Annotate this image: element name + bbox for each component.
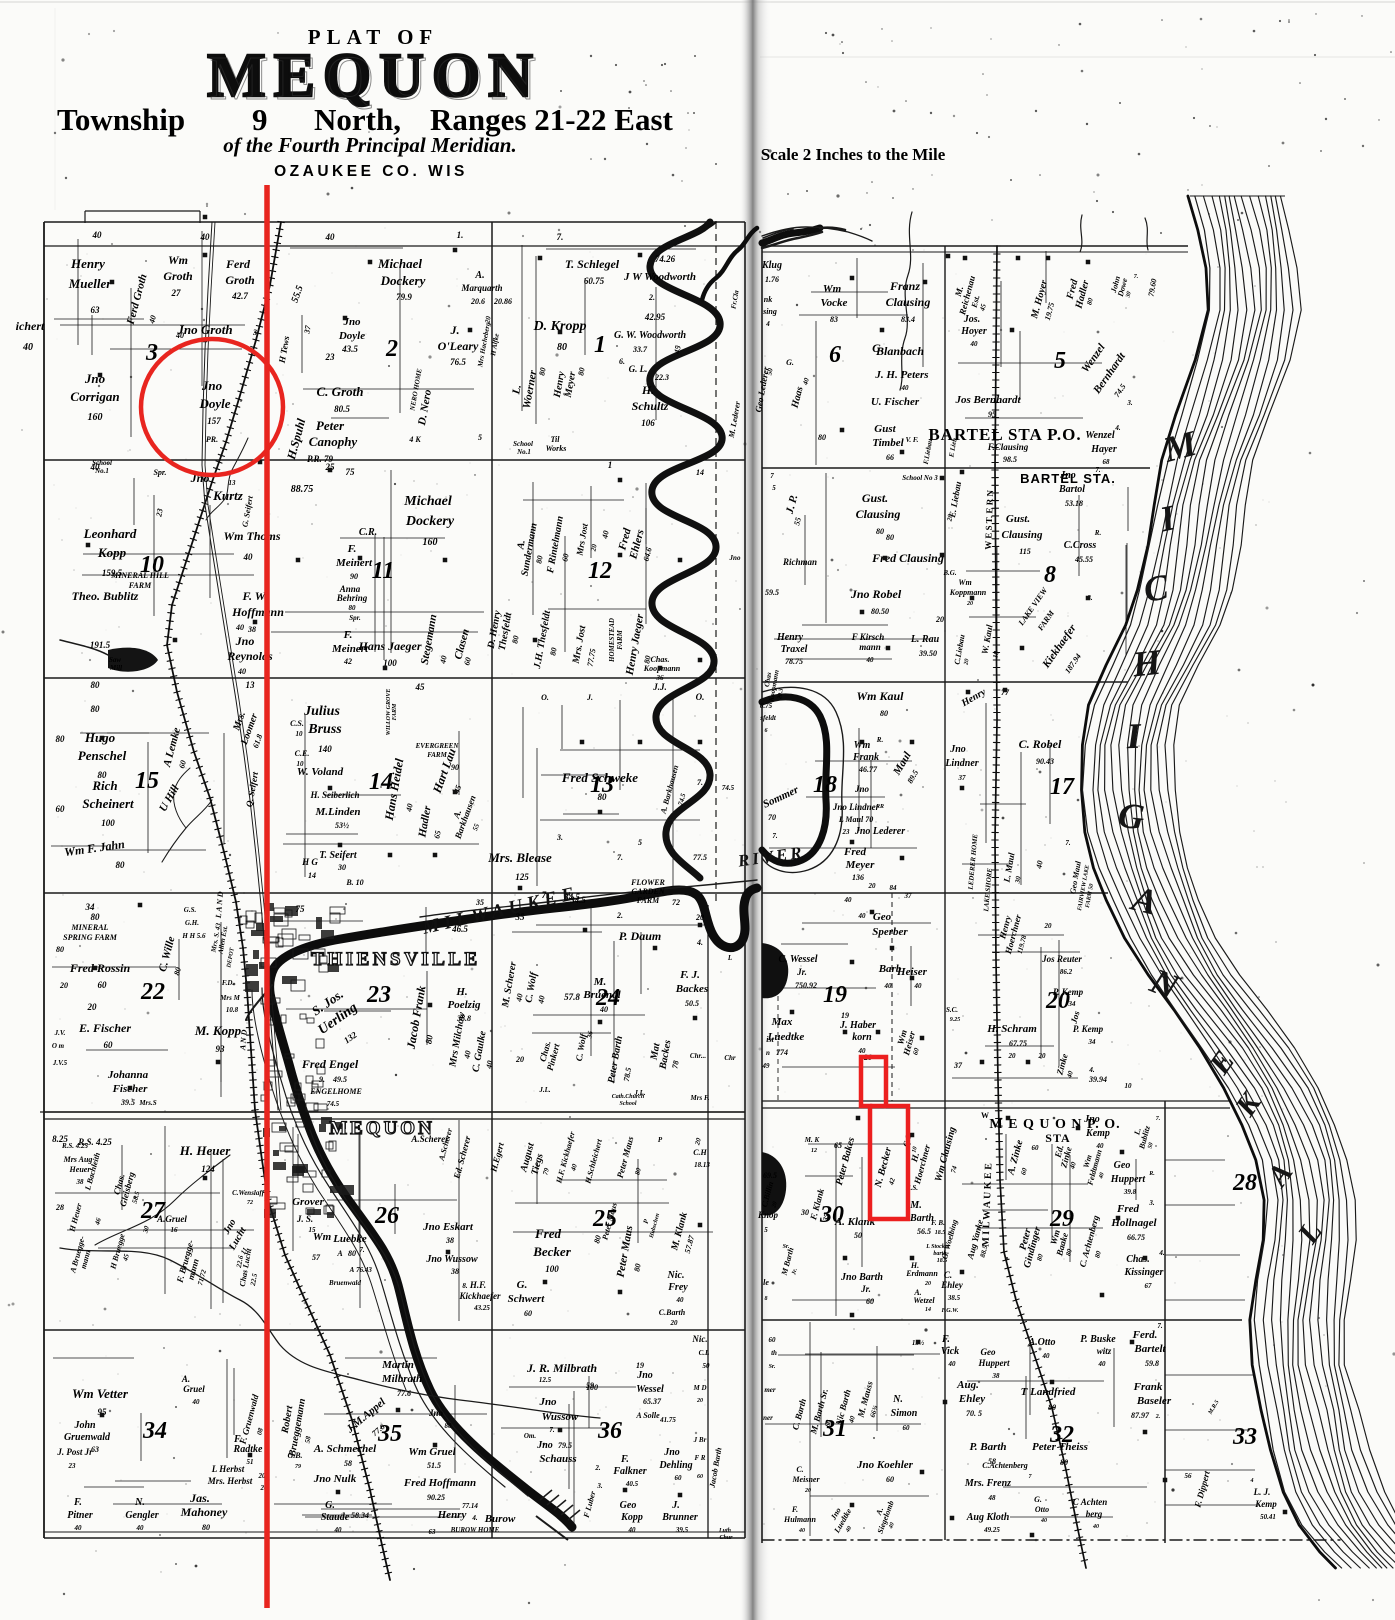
svg-text:J.: J. xyxy=(586,693,593,702)
svg-text:80: 80 xyxy=(348,1249,356,1258)
svg-text:160: 160 xyxy=(88,412,103,423)
svg-text:2.: 2. xyxy=(594,1464,601,1472)
svg-text:Kissinger: Kissinger xyxy=(1124,1267,1164,1278)
svg-text:G: G xyxy=(1116,795,1146,837)
svg-text:F R: F R xyxy=(695,1454,706,1462)
svg-text:80: 80 xyxy=(56,945,64,954)
svg-text:69.5: 69.5 xyxy=(763,1171,777,1180)
svg-text:F Kirsch: F Kirsch xyxy=(851,632,885,642)
svg-text:15: 15 xyxy=(309,1226,317,1234)
svg-text:J. Post Jr: J. Post Jr xyxy=(56,1447,93,1457)
svg-text:5: 5 xyxy=(478,433,482,442)
svg-text:Scheinert: Scheinert xyxy=(82,796,134,811)
svg-text:4.: 4. xyxy=(1114,424,1121,432)
svg-text:20.6: 20.6 xyxy=(470,297,485,306)
svg-text:Hulmann: Hulmann xyxy=(783,1515,817,1524)
svg-text:125: 125 xyxy=(515,872,529,882)
svg-text:40: 40 xyxy=(676,1296,685,1304)
svg-text:Doyle: Doyle xyxy=(338,330,365,342)
svg-text:45: 45 xyxy=(415,682,426,692)
svg-text:18.13: 18.13 xyxy=(694,1161,710,1169)
svg-text:Leonhard: Leonhard xyxy=(83,526,137,541)
svg-text:39.5: 39.5 xyxy=(120,1098,135,1107)
svg-text:60: 60 xyxy=(697,1474,703,1480)
svg-text:Staude: Staude xyxy=(321,1512,350,1523)
svg-text:PR.: PR. xyxy=(206,435,218,444)
svg-text:G.: G. xyxy=(325,1500,335,1511)
svg-text:1: 1 xyxy=(608,460,613,470)
svg-text:MEQUON: MEQUON xyxy=(329,1118,435,1139)
svg-text:750.92: 750.92 xyxy=(795,981,817,990)
svg-text:20: 20 xyxy=(868,882,877,890)
svg-text:3.: 3. xyxy=(556,833,563,842)
svg-text:63: 63 xyxy=(91,305,101,315)
svg-text:Doyle: Doyle xyxy=(198,396,230,411)
svg-text:45: 45 xyxy=(672,345,682,355)
svg-text:100: 100 xyxy=(545,1264,559,1274)
svg-text:40: 40 xyxy=(325,232,336,242)
svg-text:11: 11 xyxy=(372,558,395,584)
svg-text:L Maul 70: L Maul 70 xyxy=(838,815,873,824)
svg-text:53½: 53½ xyxy=(335,821,349,830)
svg-text:49.5: 49.5 xyxy=(332,1075,347,1084)
svg-text:A.Gruel: A.Gruel xyxy=(156,1214,187,1224)
svg-text:mann: mann xyxy=(859,642,881,652)
svg-text:10: 10 xyxy=(297,760,305,768)
svg-text:80: 80 xyxy=(510,635,520,644)
svg-text:Fred Clausing: Fred Clausing xyxy=(871,551,944,565)
svg-text:80: 80 xyxy=(1060,1458,1068,1467)
svg-text:Bruendl: Bruendl xyxy=(582,989,621,1001)
svg-text:F. W.: F. W. xyxy=(241,589,267,603)
svg-text:40: 40 xyxy=(462,1050,472,1060)
svg-text:60: 60 xyxy=(769,1336,777,1344)
svg-text:51: 51 xyxy=(247,1458,254,1466)
svg-text:FARM: FARM xyxy=(392,703,398,720)
svg-text:7.: 7. xyxy=(359,1246,365,1254)
svg-text:20: 20 xyxy=(1045,988,1070,1014)
svg-text:Erdmann: Erdmann xyxy=(905,1269,938,1278)
svg-text:5: 5 xyxy=(772,484,776,492)
svg-text:Klug: Klug xyxy=(761,260,782,271)
svg-text:Huppert: Huppert xyxy=(1110,1174,1147,1185)
svg-text:20: 20 xyxy=(1008,1052,1017,1060)
svg-text:40: 40 xyxy=(858,912,867,920)
svg-text:77.6: 77.6 xyxy=(397,1389,411,1398)
svg-text:J.: J. xyxy=(450,323,460,337)
svg-text:80: 80 xyxy=(598,792,608,802)
svg-text:38: 38 xyxy=(76,1178,85,1186)
svg-text:C.S.: C.S. xyxy=(290,719,304,728)
svg-text:Baseler: Baseler xyxy=(1136,1395,1172,1407)
svg-text:10: 10 xyxy=(296,730,304,738)
svg-text:J. S.: J. S. xyxy=(296,1214,313,1224)
svg-text:43.25: 43.25 xyxy=(473,1304,490,1312)
svg-text:Blanbach: Blanbach xyxy=(875,344,924,358)
svg-text:2.: 2. xyxy=(1155,1414,1161,1420)
svg-text:Jno Barth: Jno Barth xyxy=(840,1272,883,1283)
svg-text:40: 40 xyxy=(948,1360,957,1368)
svg-text:BARTEL STA.: BARTEL STA. xyxy=(1020,471,1116,486)
svg-text:14: 14 xyxy=(925,1307,931,1313)
svg-text:7.: 7. xyxy=(772,832,778,840)
svg-text:C.H: C.H xyxy=(693,1148,707,1157)
svg-text:L. Rau: L. Rau xyxy=(910,634,940,645)
svg-text:MINERAL: MINERAL xyxy=(71,923,109,932)
svg-text:80: 80 xyxy=(116,860,126,870)
svg-text:Jr.: Jr. xyxy=(796,967,807,977)
svg-text:56: 56 xyxy=(1185,1472,1193,1480)
svg-text:83.4: 83.4 xyxy=(901,315,915,324)
svg-text:Michael: Michael xyxy=(377,256,422,271)
svg-text:5: 5 xyxy=(764,1226,768,1234)
svg-text:Vick: Vick xyxy=(941,1346,959,1357)
svg-text:4.: 4. xyxy=(1088,1066,1095,1074)
svg-text:4.: 4. xyxy=(696,938,703,947)
svg-text:74.5: 74.5 xyxy=(722,784,735,792)
svg-text:40: 40 xyxy=(599,1005,608,1014)
svg-text:STA: STA xyxy=(1045,1131,1070,1145)
svg-text:Wm Gruel: Wm Gruel xyxy=(408,1446,456,1458)
svg-text:60: 60 xyxy=(903,1424,911,1432)
svg-text:Dockery: Dockery xyxy=(380,273,426,288)
svg-text:Wm Thoms: Wm Thoms xyxy=(223,529,280,543)
svg-text:Geo: Geo xyxy=(620,1500,637,1511)
svg-text:Jos Bernhardt: Jos Bernhardt xyxy=(954,394,1021,406)
svg-text:THIENSVILLE: THIENSVILLE xyxy=(311,949,480,970)
svg-text:20: 20 xyxy=(924,1281,931,1287)
svg-text:50: 50 xyxy=(703,1362,711,1370)
svg-text:C. Wessel: C. Wessel xyxy=(778,954,817,965)
svg-text:80: 80 xyxy=(818,433,826,442)
svg-text:M.: M. xyxy=(909,1200,921,1211)
svg-text:Peter: Peter xyxy=(316,418,345,433)
svg-text:C.: C. xyxy=(944,1270,952,1280)
svg-text:J.J.: J.J. xyxy=(652,682,667,692)
svg-text:37: 37 xyxy=(958,774,967,782)
svg-text:Township9North,Ranges 21-22 Ea: Township9North,Ranges 21-22 East xyxy=(57,102,674,137)
svg-text:O.: O. xyxy=(541,693,549,702)
svg-text:Frank: Frank xyxy=(1133,1381,1163,1393)
svg-text:20: 20 xyxy=(696,1398,703,1404)
svg-text:5: 5 xyxy=(638,838,642,847)
svg-text:G.: G. xyxy=(517,1279,528,1291)
svg-text:43.5: 43.5 xyxy=(341,344,358,354)
svg-text:40: 40 xyxy=(970,340,979,348)
svg-text:17: 17 xyxy=(1050,774,1075,800)
svg-text:13: 13 xyxy=(246,680,256,690)
svg-text:FARM: FARM xyxy=(636,896,660,905)
svg-text:Jno: Jno xyxy=(536,1440,553,1451)
svg-text:C. Groth: C. Groth xyxy=(317,384,364,399)
svg-text:of the Fourth Principal Meridi: of the Fourth Principal Meridian. xyxy=(223,133,516,157)
svg-text:7.: 7. xyxy=(1156,1116,1161,1122)
svg-text:J.: J. xyxy=(671,1500,680,1511)
svg-text:sing: sing xyxy=(762,307,777,316)
svg-text:7.: 7. xyxy=(1134,274,1139,280)
svg-text:34.5: 34.5 xyxy=(569,895,586,905)
svg-text:C.Achtenberg: C.Achtenberg xyxy=(982,1461,1028,1470)
svg-text:H.F.: H.F. xyxy=(469,1280,486,1290)
svg-text:4: 4 xyxy=(765,320,770,328)
svg-text:80: 80 xyxy=(202,1523,210,1532)
svg-text:39.5: 39.5 xyxy=(675,1526,689,1534)
svg-text:Mrs. Frenz: Mrs. Frenz xyxy=(964,1478,1011,1489)
svg-text:F. B.: F. B. xyxy=(931,1219,945,1227)
svg-text:Geo: Geo xyxy=(873,911,892,923)
svg-text:88.75: 88.75 xyxy=(291,484,314,495)
svg-text:Franz: Franz xyxy=(889,279,920,293)
svg-text:18: 18 xyxy=(813,772,837,798)
svg-text:P. Buske: P. Buske xyxy=(1080,1334,1116,1345)
svg-text:63: 63 xyxy=(429,1528,437,1536)
svg-text:O m: O m xyxy=(52,1042,65,1050)
svg-text:J W Woodworth: J W Woodworth xyxy=(623,271,696,283)
svg-text:7.: 7. xyxy=(1157,1322,1163,1330)
svg-text:Simon: Simon xyxy=(891,1408,918,1419)
svg-text:Gust: Gust xyxy=(874,423,896,435)
svg-text:23: 23 xyxy=(68,1462,77,1470)
svg-text:T. Schlegel: T. Schlegel xyxy=(565,257,620,271)
svg-text:59.5: 59.5 xyxy=(765,588,779,597)
svg-text:Chas.: Chas. xyxy=(651,655,670,664)
svg-text:C.: C. xyxy=(796,1465,803,1474)
svg-text:40: 40 xyxy=(192,1398,201,1406)
svg-text:H. Schram: H. Schram xyxy=(986,1023,1037,1035)
svg-text:BARTEL STA P.O.: BARTEL STA P.O. xyxy=(928,425,1081,444)
svg-text:80: 80 xyxy=(1048,1403,1056,1412)
svg-text:31: 31 xyxy=(822,1416,847,1442)
svg-text:Canophy: Canophy xyxy=(309,434,358,449)
svg-text:14: 14 xyxy=(308,871,316,880)
svg-text:6: 6 xyxy=(829,342,841,368)
svg-text:20: 20 xyxy=(515,1055,524,1064)
svg-text:Henry: Henry xyxy=(776,632,804,643)
svg-text:140: 140 xyxy=(318,744,332,754)
svg-text:Spr.: Spr. xyxy=(349,614,361,622)
svg-text:W E S T. E R N: W E S T. E R N xyxy=(983,489,995,550)
svg-text:20: 20 xyxy=(1044,922,1053,930)
svg-text:Gruel: Gruel xyxy=(183,1384,205,1394)
svg-text:GARDEN: GARDEN xyxy=(631,887,666,896)
svg-text:40: 40 xyxy=(92,230,103,240)
svg-text:19: 19 xyxy=(823,982,847,1008)
svg-text:Jos.: Jos. xyxy=(963,314,980,325)
svg-text:B.G.: B.G. xyxy=(942,569,956,577)
svg-text:Jno Robel: Jno Robel xyxy=(850,587,902,601)
svg-text:Spr.: Spr. xyxy=(153,468,166,477)
svg-text:40: 40 xyxy=(1040,1518,1047,1524)
svg-text:30: 30 xyxy=(337,863,346,872)
svg-text:72: 72 xyxy=(247,1200,253,1206)
svg-text:40: 40 xyxy=(90,462,101,472)
svg-text:23: 23 xyxy=(325,352,336,362)
svg-text:R.: R. xyxy=(1094,529,1102,537)
svg-text:33: 33 xyxy=(1232,1424,1257,1450)
svg-text:32: 32 xyxy=(1049,1422,1074,1448)
svg-text:50.41: 50.41 xyxy=(1260,1513,1276,1521)
svg-text:34: 34 xyxy=(142,1418,167,1444)
svg-text:72: 72 xyxy=(672,898,680,907)
svg-text:70: 70 xyxy=(768,813,776,822)
svg-text:A.Otto: A.Otto xyxy=(1028,1337,1056,1348)
svg-text:C Achten: C Achten xyxy=(1073,1497,1107,1507)
svg-text:Fred: Fred xyxy=(843,846,867,858)
svg-text:S.C.: S.C. xyxy=(946,1006,958,1014)
svg-text:C.Barth: C.Barth xyxy=(659,1308,686,1317)
svg-text:57: 57 xyxy=(312,1253,321,1262)
svg-text:38: 38 xyxy=(445,1236,454,1245)
svg-text:80: 80 xyxy=(632,1263,642,1272)
svg-text:R.: R. xyxy=(1148,1171,1155,1177)
svg-text:Fred: Fred xyxy=(534,1226,562,1241)
svg-text:F.G.W.: F.G.W. xyxy=(942,1308,959,1314)
svg-text:38: 38 xyxy=(992,1372,1001,1380)
svg-text:J.V.5: J.V.5 xyxy=(52,1059,68,1067)
svg-text:8.: 8. xyxy=(462,1282,468,1290)
svg-text:60: 60 xyxy=(866,1297,874,1306)
svg-text:59.8: 59.8 xyxy=(1145,1359,1159,1368)
svg-text:P: P xyxy=(658,1136,663,1144)
svg-text:sfeldt: sfeldt xyxy=(759,714,777,722)
svg-text:90.43: 90.43 xyxy=(1036,757,1054,766)
svg-text:30: 30 xyxy=(800,1208,809,1217)
svg-text:19: 19 xyxy=(841,1011,849,1020)
svg-text:22.3: 22.3 xyxy=(654,373,669,382)
svg-text:SPRING FARM: SPRING FARM xyxy=(63,933,118,942)
svg-text:42.7: 42.7 xyxy=(231,291,248,301)
svg-text:5: 5 xyxy=(1054,348,1066,374)
svg-text:Aug.: Aug. xyxy=(956,1379,979,1391)
svg-text:38: 38 xyxy=(247,625,256,634)
svg-text:Clausing: Clausing xyxy=(886,295,931,309)
svg-text:3.: 3. xyxy=(1126,399,1133,407)
svg-text:M.: M. xyxy=(593,976,607,988)
svg-text:93: 93 xyxy=(216,1044,226,1054)
svg-text:Wm: Wm xyxy=(168,253,188,267)
svg-text:40: 40 xyxy=(628,1526,637,1534)
svg-text:1.76: 1.76 xyxy=(765,275,779,284)
svg-text:J.V.: J.V. xyxy=(54,1029,66,1037)
svg-text:Wm Kaul: Wm Kaul xyxy=(856,689,904,703)
svg-text:78.75: 78.75 xyxy=(785,657,803,666)
svg-text:Bruenwald: Bruenwald xyxy=(328,1279,361,1287)
svg-text:Kickhaefer: Kickhaefer xyxy=(459,1291,501,1301)
svg-text:8: 8 xyxy=(1044,562,1056,588)
svg-text:M.Linden: M.Linden xyxy=(315,806,361,818)
svg-text:Frey: Frey xyxy=(667,1282,688,1293)
svg-text:40: 40 xyxy=(175,331,184,340)
svg-text:65: 65 xyxy=(834,1141,842,1150)
svg-text:40.5: 40.5 xyxy=(625,1480,639,1488)
svg-text:36: 36 xyxy=(597,1418,622,1444)
svg-text:G.: G. xyxy=(786,358,794,367)
svg-text:W. Voland: W. Voland xyxy=(297,766,344,778)
svg-text:63: 63 xyxy=(91,1445,99,1454)
svg-text:29: 29 xyxy=(1049,1206,1074,1232)
svg-text:Jno: Jno xyxy=(949,744,966,755)
svg-text:F.: F. xyxy=(620,1454,629,1465)
svg-text:V. F.: V. F. xyxy=(906,436,919,444)
svg-text:80: 80 xyxy=(534,555,544,564)
svg-text:ist: ist xyxy=(766,1035,774,1044)
svg-text:40: 40 xyxy=(798,1528,805,1534)
svg-text:C.Wenslaff: C.Wenslaff xyxy=(232,1189,264,1197)
svg-text:Hans Jaeger: Hans Jaeger xyxy=(358,639,422,653)
svg-text:Dehling: Dehling xyxy=(658,1460,692,1471)
svg-text:Wessel: Wessel xyxy=(636,1384,664,1395)
svg-text:F.: F. xyxy=(791,1505,798,1514)
svg-text:Bartelt: Bartelt xyxy=(1133,1343,1166,1355)
svg-text:67: 67 xyxy=(1145,1282,1153,1290)
svg-text:C. Robel: C. Robel xyxy=(1019,737,1062,751)
svg-text:HOMESTEAD: HOMESTEAD xyxy=(608,618,616,663)
svg-text:15: 15 xyxy=(135,768,159,794)
svg-text:2.: 2. xyxy=(616,911,623,920)
svg-text:Timbel: Timbel xyxy=(872,437,904,449)
svg-text:60: 60 xyxy=(886,1475,894,1484)
svg-text:33.7: 33.7 xyxy=(632,345,648,354)
svg-text:Jno: Jno xyxy=(663,1447,680,1458)
svg-text:T Landfried: T Landfried xyxy=(1021,1386,1076,1398)
svg-text:Michael: Michael xyxy=(403,494,452,509)
svg-text:Clausing: Clausing xyxy=(1002,529,1043,541)
svg-text:ner: ner xyxy=(763,1414,773,1422)
svg-text:Corrigan: Corrigan xyxy=(70,389,119,404)
svg-text:C.L: C.L xyxy=(699,1349,710,1357)
svg-text:40: 40 xyxy=(136,1524,145,1532)
svg-text:ichert: ichert xyxy=(16,319,45,333)
svg-text:Schwert: Schwert xyxy=(508,1293,546,1305)
svg-text:Heuer: Heuer xyxy=(69,1165,92,1174)
svg-text:Jno: Jno xyxy=(201,378,223,393)
svg-text:nk: nk xyxy=(764,295,772,304)
svg-text:L. J.: L. J. xyxy=(1253,1487,1271,1497)
svg-text:EVERGREEN: EVERGREEN xyxy=(415,742,460,750)
svg-text:42.95: 42.95 xyxy=(644,312,666,322)
svg-text:20: 20 xyxy=(1038,1052,1047,1060)
svg-text:60: 60 xyxy=(560,553,570,562)
svg-text:Jno Koehler: Jno Koehler xyxy=(856,1459,914,1471)
svg-text:G.H.: G.H. xyxy=(185,919,199,927)
svg-text:4.: 4. xyxy=(471,1514,478,1522)
svg-text:9.25: 9.25 xyxy=(950,1017,961,1023)
svg-text:Scale 2 Inches to the Mile: Scale 2 Inches to the Mile xyxy=(761,145,946,164)
svg-text:22: 22 xyxy=(140,979,165,1005)
svg-text:N.: N. xyxy=(134,1497,145,1508)
svg-text:40: 40 xyxy=(200,232,211,242)
svg-text:F.: F. xyxy=(343,629,353,641)
svg-text:th: th xyxy=(771,1349,777,1357)
svg-text:13: 13 xyxy=(229,479,237,487)
svg-text:F.: F. xyxy=(347,543,357,555)
svg-text:160: 160 xyxy=(423,537,438,548)
svg-text:Jno: Jno xyxy=(729,554,741,562)
svg-text:40: 40 xyxy=(1098,1360,1107,1368)
svg-text:Poelzig: Poelzig xyxy=(448,999,481,1011)
svg-text:Ferd: Ferd xyxy=(225,257,251,271)
svg-text:A Solle: A Solle xyxy=(635,1411,660,1420)
svg-text:1.: 1. xyxy=(457,230,464,240)
svg-text:U. Fischer: U. Fischer xyxy=(871,396,920,408)
svg-text:Gengler: Gengler xyxy=(125,1510,158,1521)
svg-text:Om.: Om. xyxy=(524,1432,537,1440)
svg-text:A: A xyxy=(349,1266,355,1274)
svg-text:A. Schmechel: A. Schmechel xyxy=(313,1443,377,1455)
svg-text:50.5: 50.5 xyxy=(685,999,699,1008)
svg-text:Schauss: Schauss xyxy=(539,1453,576,1465)
svg-text:Sperber: Sperber xyxy=(872,926,908,938)
